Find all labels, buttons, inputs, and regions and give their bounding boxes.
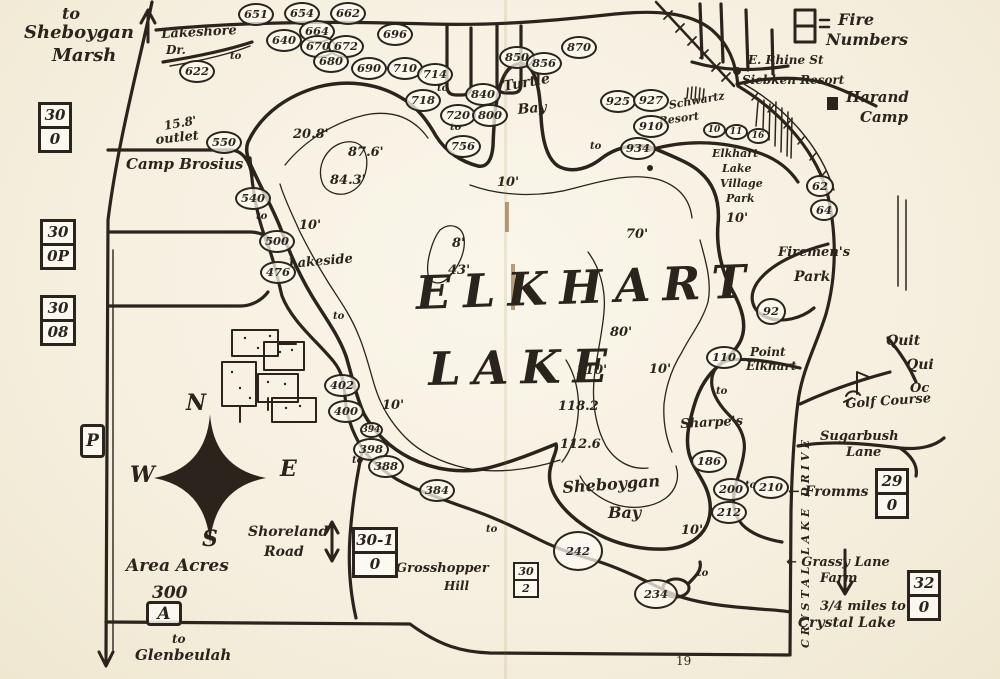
road-sign-top: 30 [43, 222, 73, 243]
west-connector-streets [108, 150, 272, 306]
road-sign-top: 30 [515, 564, 537, 579]
grasshopper-hill-label-2: Hill [444, 580, 469, 592]
fire-number-925: 925 [600, 90, 636, 113]
area-acres-label: Area Acres [126, 558, 229, 575]
fire-numbers-legend-icon [795, 10, 829, 42]
depth-label: 10' [649, 363, 671, 376]
fire-number-400: 400 [328, 400, 364, 423]
subdivision-blocks [222, 330, 316, 422]
area-acres-label-2: 300 [152, 585, 188, 602]
depth-label: 70' [626, 228, 648, 241]
village-park-label-2: Lake [722, 163, 751, 174]
harand-building [827, 97, 838, 110]
road-sign-top: 29 [878, 471, 906, 492]
depth-label: 112.6 [560, 438, 601, 451]
road-sign-bottom: 0 [910, 594, 938, 618]
depth-label: 84.3' [330, 174, 366, 187]
shoreland-road-label-2: Road [264, 545, 304, 559]
depth-label: 118.2 [558, 400, 599, 413]
road-sign-29-0: 290 [875, 468, 909, 519]
fire-number-110: 110 [706, 346, 742, 369]
sugarbush-lane-label: Sugarbush [820, 430, 899, 443]
to-marker: to [486, 525, 497, 535]
road-sign-30-08: 3008 [40, 295, 76, 346]
lakeshore-dr-label: Lakeshore [161, 24, 237, 41]
fire-number-662: 662 [330, 2, 366, 25]
turtle-bay-label-2: Bay [517, 100, 547, 116]
firemens-park-label: Firemen's [778, 246, 850, 259]
grassy-lane-farm-label-2: Farm [820, 572, 858, 585]
village-park-label: Elkhart [712, 148, 758, 159]
road-sign-30-1-0: 30-10 [352, 527, 398, 578]
compass-west-label: W [130, 464, 155, 486]
fire-number-476: 476 [260, 261, 296, 284]
depth-label: 87.6' [348, 146, 384, 159]
shoreland-road-label: Shoreland [248, 525, 328, 539]
siebken-resort-label: Siebken Resort [742, 74, 844, 86]
harand-camp-label-2: Camp [860, 110, 908, 125]
elkhart-lake-map: toSheboyganMarshLakeshoreDr.15.8'outletC… [0, 0, 1000, 679]
depth-label: 10' [681, 524, 703, 537]
to-marker: to [590, 142, 601, 152]
fire-number-934: 934 [620, 137, 656, 160]
fire-number-64: 64 [810, 199, 838, 221]
compass-north-label: N [186, 392, 206, 414]
fire-number-210: 210 [753, 476, 789, 499]
road-sign-top: 32 [910, 573, 938, 594]
road-sign-bottom: 0P [43, 243, 73, 267]
road-sign-bottom: 2 [515, 579, 537, 596]
legend-numbers-label: Numbers [826, 32, 908, 48]
fire-number-856: 856 [526, 52, 562, 75]
highway-marker-A: A [146, 601, 182, 626]
fire-number-718: 718 [405, 89, 441, 112]
fire-number-500: 500 [259, 230, 295, 253]
fire-number-714: 714 [417, 63, 453, 86]
compass-south-label: S [202, 528, 218, 550]
compass-east-label: E [280, 458, 297, 480]
depth-label: 10' [299, 219, 321, 232]
camp-brosius-label: Camp Brosius [126, 157, 243, 172]
crystal-lake-drive-label: CRYSTAL LAKE DRIVE [800, 436, 811, 648]
fire-number-212: 212 [711, 501, 747, 524]
fire-number-16: 16 [747, 128, 770, 144]
road-sign-bottom: 0 [41, 126, 69, 150]
road-sign-30-0: 300 [38, 102, 72, 153]
fire-number-200: 200 [713, 478, 749, 501]
road-sign-top: 30 [41, 105, 69, 126]
quit-qui-oc-label: Quit [886, 334, 920, 348]
fire-number-10: 10 [703, 122, 726, 138]
fire-number-927: 927 [633, 89, 669, 112]
quit-qui-oc-label-2: Qui [906, 358, 934, 372]
village-park-label-3: Village [720, 178, 763, 189]
firemens-park-label-2: Park [794, 270, 830, 284]
to-marker: to [697, 569, 708, 579]
fire-number-62: 62 [806, 175, 834, 197]
depth-label: 10' [497, 176, 519, 189]
depth-label: 110' [576, 364, 607, 377]
fire-number-756: 756 [445, 135, 481, 158]
road-sign-30-2: 302 [513, 562, 539, 598]
fire-number-870: 870 [561, 36, 597, 59]
fire-number-388: 388 [368, 455, 404, 478]
fire-number-394: 394 [360, 422, 383, 438]
fire-number-550: 550 [206, 131, 242, 154]
depth-label: 80' [610, 326, 632, 339]
sugarbush-lane-label-2: Lane [846, 446, 881, 459]
fire-number-234: 234 [634, 579, 678, 609]
fire-number-651: 651 [238, 3, 274, 26]
glenbeulah-label: Glenbeulah [135, 648, 231, 663]
village-park-label-4: Park [726, 193, 755, 204]
village-building-dot [647, 165, 653, 171]
fire-number-622: 622 [179, 60, 215, 83]
fire-number-242: 242 [553, 531, 603, 571]
to-marker: to [333, 312, 344, 322]
road-sign-bottom: 08 [43, 319, 73, 343]
depth-label: 43' [448, 264, 470, 277]
point-elkhart-label: Point [750, 346, 786, 358]
fire-number-384: 384 [419, 479, 455, 502]
page-number: 19 [676, 655, 691, 667]
to-marker: to [256, 212, 267, 222]
depth-label: 8' [452, 237, 465, 250]
fire-number-800: 800 [472, 104, 508, 127]
road-sign-bottom: 0 [878, 492, 906, 516]
fire-number-640: 640 [266, 29, 302, 52]
fire-number-840: 840 [465, 83, 501, 106]
point-elkhart-label-2: Elkhart [746, 360, 796, 372]
fire-number-690: 690 [351, 57, 387, 80]
fire-number-186: 186 [691, 450, 727, 473]
grasshopper-hill-label: Grosshopper [396, 562, 489, 575]
fire-number-696: 696 [377, 23, 413, 46]
to-glenbeulah-label: to [172, 633, 186, 645]
fire-number-720: 720 [440, 104, 476, 127]
road-sign-30-0P: 300P [40, 219, 76, 270]
fire-number-540: 540 [235, 187, 271, 210]
sheboygan-marsh-label-2: Marsh [52, 47, 116, 65]
harand-camp-label: Harand [846, 90, 909, 105]
fire-number-402: 402 [324, 374, 360, 397]
to-sheboygan-marsh: to [62, 6, 80, 22]
fire-number-92: 92 [756, 298, 786, 325]
road-sign-top: 30 [43, 298, 73, 319]
fold-seam [504, 0, 507, 679]
road-sign-32-0: 320 [907, 570, 941, 621]
depth-label: 10' [726, 212, 748, 225]
depth-label: 10' [382, 399, 404, 412]
highway-marker-P: P [80, 424, 105, 458]
sheboygan-marsh-label: Sheboygan [24, 24, 134, 42]
sharpes-label: Sharpe's [680, 415, 743, 431]
depth-label: 20.8' [293, 128, 329, 141]
sheboygan-bay-label-2: Bay [608, 505, 641, 521]
to-marker: to [230, 52, 241, 62]
to-marker: to [437, 84, 448, 94]
fire-number-11: 11 [725, 124, 748, 140]
to-marker: to [716, 387, 727, 397]
crystal-lake-label: Crystal Lake [798, 616, 896, 630]
fire-number-680: 680 [313, 50, 349, 73]
road-sign-top: 30-1 [355, 530, 395, 551]
lakeshore-dr-label-2: Dr. [166, 44, 186, 56]
road-sign-bottom: 0 [355, 551, 395, 575]
street-stub-1 [447, 26, 471, 95]
legend-fire-label: Fire [838, 12, 874, 28]
crystal-lake-distance-label: 3/4 miles to [820, 600, 906, 613]
e-rhine-st-label: E. Rhine St [748, 54, 824, 66]
siebken-building-dot [733, 67, 741, 75]
arrow-down-glenbeulah [99, 630, 113, 666]
fire-number-910: 910 [633, 115, 669, 138]
